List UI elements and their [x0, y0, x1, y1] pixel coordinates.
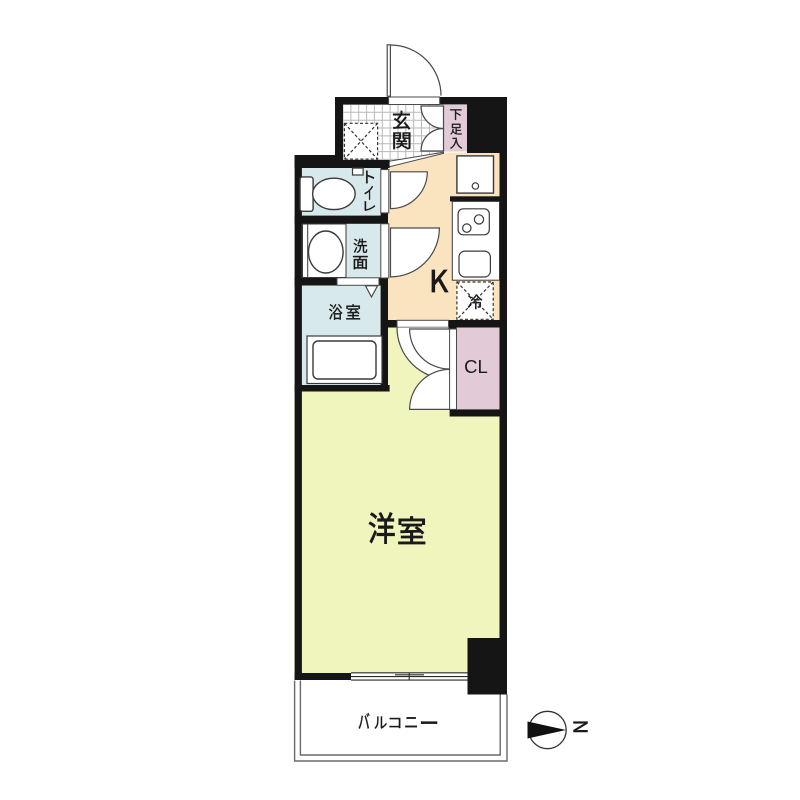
- svg-text:CL: CL: [464, 356, 488, 377]
